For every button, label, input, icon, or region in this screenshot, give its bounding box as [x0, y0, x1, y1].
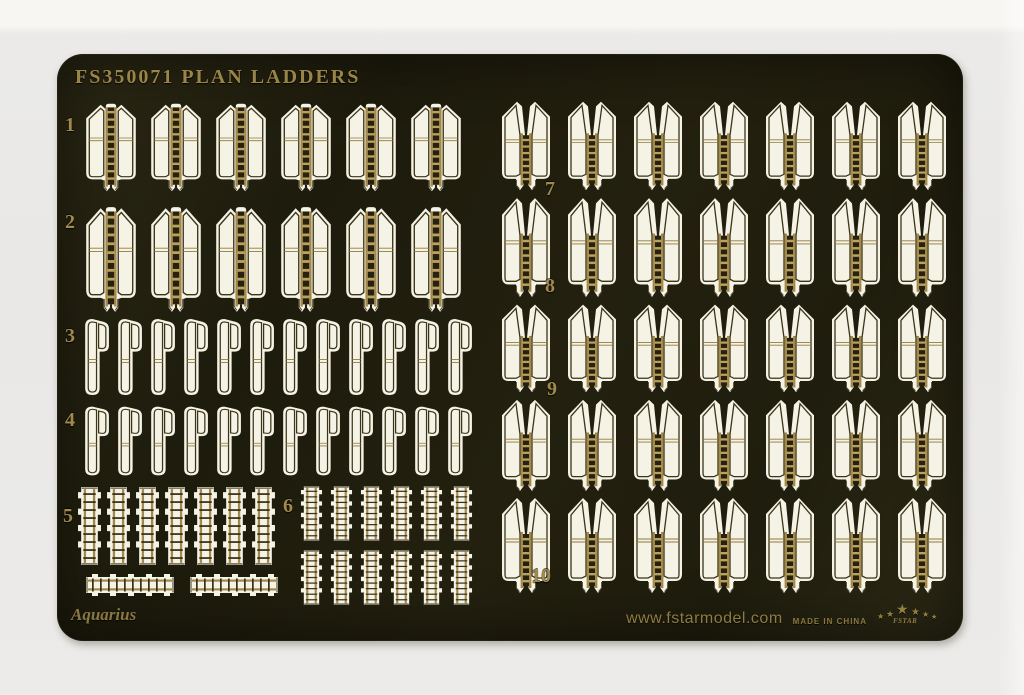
group-label-5: 5	[63, 506, 73, 526]
part-graphic	[561, 396, 623, 492]
pe-part-side-rail	[410, 403, 441, 479]
made-in-china-text: MADE IN CHINA	[793, 617, 867, 626]
part-graphic	[275, 102, 337, 192]
pe-part-ladder-folded-wide	[891, 396, 953, 492]
part-graphic	[693, 396, 755, 492]
part-graphic	[627, 301, 689, 393]
pe-part-ladder-strip-vertical	[330, 549, 353, 606]
pe-part-ladder-folded-wide	[561, 494, 623, 594]
part-graphic	[627, 98, 689, 191]
part-graphic	[251, 485, 276, 567]
part-group-10: 10	[495, 494, 953, 594]
part-graphic	[330, 549, 353, 606]
part-graphic	[561, 494, 623, 594]
pe-part-ladder-folded-wide	[693, 301, 755, 393]
pe-part-side-rail	[245, 403, 276, 479]
part-graphic	[627, 494, 689, 594]
part-strip	[495, 301, 953, 393]
pe-part-ladder-folded-wide	[693, 494, 755, 594]
part-graphic	[377, 315, 408, 399]
pe-part-ladder-strip-vertical	[77, 485, 102, 567]
pe-part-ladder-strip-vertical	[420, 549, 443, 606]
pe-part-ladder-folded-wide	[759, 396, 821, 492]
pe-part-ladder-folded-wide	[759, 194, 821, 298]
photo-etch-sheet: FS350071 PLAN LADDERS 1 2 3 4 5 6	[57, 54, 963, 641]
part-graphic	[759, 194, 821, 298]
part-graphic	[390, 549, 413, 606]
pe-part-ladder-folded-wide	[759, 494, 821, 594]
pe-part-ladder-folded-wide	[759, 301, 821, 393]
part-graphic	[300, 485, 323, 542]
pe-part-ladder-folded-wide	[693, 194, 755, 298]
part-graphic	[179, 403, 210, 479]
pe-part-ladder-folded-wide	[825, 98, 887, 191]
part-group-9b	[495, 396, 953, 492]
part-graphic	[311, 315, 342, 399]
pe-part-ladder-folded	[145, 205, 207, 313]
part-group-4: 4	[80, 403, 474, 479]
group-label-4: 4	[65, 410, 75, 430]
part-graphic	[344, 315, 375, 399]
pe-part-ladder-folded-wide	[627, 301, 689, 393]
part-graphic	[179, 315, 210, 399]
pe-part-ladder-folded	[275, 205, 337, 313]
part-graphic	[193, 485, 218, 567]
part-graphic	[825, 301, 887, 393]
part-graphic	[113, 315, 144, 399]
part-graphic	[561, 194, 623, 298]
group-label-1: 1	[65, 115, 75, 135]
pe-part-ladder-folded	[80, 102, 142, 192]
part-strip	[80, 315, 474, 399]
part-strip	[495, 396, 953, 492]
pe-part-side-rail	[443, 315, 474, 399]
pe-part-side-rail	[311, 403, 342, 479]
pe-part-ladder-strip-vertical	[420, 485, 443, 542]
part-graphic	[825, 98, 887, 191]
part-graphic	[340, 205, 402, 313]
pe-part-side-rail	[212, 315, 243, 399]
pe-part-ladder-folded-wide	[891, 494, 953, 594]
pe-part-side-rail	[212, 403, 243, 479]
pe-part-side-rail	[443, 403, 474, 479]
pe-part-ladder-folded-wide	[825, 396, 887, 492]
pe-part-side-rail	[113, 315, 144, 399]
pe-part-ladder-strip-vertical	[450, 485, 473, 542]
part-graphic	[212, 315, 243, 399]
website-url: www.fstarmodel.com	[626, 610, 783, 628]
part-graphic	[443, 315, 474, 399]
pe-part-ladder-folded	[405, 102, 467, 192]
part-graphic	[210, 205, 272, 313]
part-graphic	[759, 494, 821, 594]
pe-part-ladder-strip-vertical	[300, 549, 323, 606]
pe-part-side-rail	[146, 403, 177, 479]
pe-part-ladder-strip-vertical	[360, 549, 383, 606]
part-graphic	[210, 102, 272, 192]
brand-aquarius: Aquarius	[71, 605, 136, 625]
pe-part-ladder-folded-wide	[627, 98, 689, 191]
part-group-1: 1	[80, 102, 467, 192]
pe-part-ladder-strip-horizontal	[188, 573, 280, 597]
part-graphic	[759, 396, 821, 492]
part-graphic	[693, 494, 755, 594]
part-graphic	[561, 301, 623, 393]
part-strip	[495, 494, 953, 594]
part-strip	[80, 205, 467, 313]
part-graphic	[113, 403, 144, 479]
star-icon: ★	[931, 614, 937, 621]
pe-part-ladder-strip-vertical	[390, 485, 413, 542]
pe-part-ladder-strip-vertical	[106, 485, 131, 567]
pe-part-ladder-strip-vertical	[164, 485, 189, 567]
part-graphic	[300, 549, 323, 606]
pe-part-ladder-strip-vertical	[360, 485, 383, 542]
pe-part-ladder-folded-wide	[627, 494, 689, 594]
scanner-background: FS350071 PLAN LADDERS 1 2 3 4 5 6	[0, 0, 1024, 695]
part-group-5: 5	[77, 485, 276, 567]
part-graphic	[330, 485, 353, 542]
group-label-3: 3	[65, 326, 75, 346]
pe-part-ladder-folded-wide	[891, 194, 953, 298]
star-icon: ★	[896, 602, 909, 616]
pe-part-side-rail	[245, 315, 276, 399]
pe-part-side-rail	[80, 403, 111, 479]
pe-part-side-rail	[377, 315, 408, 399]
pe-part-side-rail	[410, 315, 441, 399]
pe-part-ladder-folded-wide	[693, 396, 755, 492]
part-graphic	[80, 403, 111, 479]
pe-part-ladder-strip-vertical	[222, 485, 247, 567]
pe-part-ladder-folded	[210, 205, 272, 313]
part-graphic	[443, 403, 474, 479]
pe-part-ladder-folded	[340, 102, 402, 192]
part-strip	[300, 485, 480, 606]
part-group-3: 3	[80, 315, 474, 399]
group-label-7: 7	[545, 179, 555, 199]
pe-part-ladder-folded-wide	[561, 98, 623, 191]
part-graphic	[106, 485, 131, 567]
part-graphic	[80, 315, 111, 399]
group-label-10: 10	[531, 566, 551, 586]
part-graphic	[561, 98, 623, 191]
part-graphic	[891, 396, 953, 492]
pe-part-side-rail	[377, 403, 408, 479]
footer-right: www.fstarmodel.com MADE IN CHINA ★ ★ ★ ★…	[626, 602, 939, 628]
pe-part-side-rail	[344, 315, 375, 399]
part-graphic	[135, 485, 160, 567]
part-strip	[495, 98, 953, 191]
part-graphic	[245, 315, 276, 399]
pe-part-side-rail	[311, 315, 342, 399]
pe-part-side-rail	[278, 403, 309, 479]
pe-part-side-rail	[113, 403, 144, 479]
fstar-logo-text: FSTAR	[893, 617, 917, 625]
fstar-logo: ★ ★ ★ ★ ★ ★ FSTAR	[877, 602, 939, 628]
part-graphic	[410, 403, 441, 479]
part-graphic	[405, 205, 467, 313]
star-icon: ★	[922, 611, 929, 619]
part-graphic	[759, 301, 821, 393]
part-graphic	[222, 485, 247, 567]
group-label-2: 2	[65, 212, 75, 232]
part-graphic	[891, 301, 953, 393]
pe-part-ladder-strip-vertical	[300, 485, 323, 542]
part-strip	[80, 403, 474, 479]
pe-part-side-rail	[146, 315, 177, 399]
pe-part-ladder-strip-horizontal	[84, 573, 176, 597]
pe-part-ladder-folded-wide	[891, 301, 953, 393]
part-graphic	[410, 315, 441, 399]
part-graphic	[891, 98, 953, 191]
group-label-6: 6	[283, 496, 293, 516]
part-strip	[495, 194, 953, 298]
part-graphic	[693, 98, 755, 191]
part-graphic	[145, 102, 207, 192]
pe-part-ladder-folded-wide	[561, 396, 623, 492]
part-graphic	[891, 194, 953, 298]
pe-part-ladder-folded-wide	[759, 98, 821, 191]
part-graphic	[627, 194, 689, 298]
part-graphic	[627, 396, 689, 492]
sheet-title: FS350071 PLAN LADDERS	[75, 66, 360, 89]
group-label-9: 9	[547, 379, 557, 399]
pe-part-ladder-folded	[210, 102, 272, 192]
part-graphic	[344, 403, 375, 479]
pe-part-ladder-folded-wide	[627, 194, 689, 298]
pe-part-ladder-folded	[340, 205, 402, 313]
part-graphic	[420, 549, 443, 606]
pe-part-ladder-strip-vertical	[251, 485, 276, 567]
pe-part-side-rail	[179, 315, 210, 399]
part-graphic	[825, 494, 887, 594]
part-graphic	[77, 485, 102, 567]
pe-part-side-rail	[278, 315, 309, 399]
part-graphic	[390, 485, 413, 542]
pe-part-ladder-folded-wide	[693, 98, 755, 191]
part-graphic	[278, 315, 309, 399]
part-group-2: 2	[80, 205, 467, 313]
part-graphic	[360, 485, 383, 542]
pe-part-ladder-folded	[145, 102, 207, 192]
pe-part-side-rail	[344, 403, 375, 479]
pe-part-ladder-strip-vertical	[135, 485, 160, 567]
part-graphic	[360, 549, 383, 606]
part-graphic	[405, 102, 467, 192]
pe-part-ladder-strip-vertical	[390, 549, 413, 606]
pe-part-ladder-folded-wide	[495, 396, 557, 492]
part-graphic	[245, 403, 276, 479]
part-graphic	[188, 573, 280, 597]
part-strip	[80, 102, 467, 192]
pe-part-ladder-folded	[80, 205, 142, 313]
pe-part-ladder-folded-wide	[825, 301, 887, 393]
part-graphic	[420, 485, 443, 542]
part-graphic	[278, 403, 309, 479]
part-graphic	[693, 301, 755, 393]
part-graphic	[80, 205, 142, 313]
pe-part-ladder-strip-vertical	[330, 485, 353, 542]
part-graphic	[80, 102, 142, 192]
group-label-8: 8	[545, 276, 555, 296]
part-graphic	[450, 485, 473, 542]
part-graphic	[146, 315, 177, 399]
part-graphic	[693, 194, 755, 298]
part-graphic	[825, 194, 887, 298]
part-graphic	[311, 403, 342, 479]
part-group-6: 6	[300, 485, 480, 606]
part-strip	[77, 485, 276, 567]
part-graphic	[759, 98, 821, 191]
part-graphic	[377, 403, 408, 479]
part-group-9: 9	[495, 301, 953, 393]
pe-part-ladder-folded-wide	[891, 98, 953, 191]
pe-part-ladder-folded-wide	[825, 494, 887, 594]
pe-part-ladder-folded-wide	[561, 301, 623, 393]
pe-part-ladder-folded-wide	[561, 194, 623, 298]
part-graphic	[146, 403, 177, 479]
pe-part-side-rail	[179, 403, 210, 479]
part-graphic	[891, 494, 953, 594]
part-strip	[84, 573, 280, 597]
part-graphic	[164, 485, 189, 567]
pe-part-ladder-strip-vertical	[450, 549, 473, 606]
star-icon: ★	[877, 613, 884, 621]
part-group-7: 7	[495, 98, 953, 191]
pe-part-ladder-folded-wide	[825, 194, 887, 298]
part-graphic	[495, 396, 557, 492]
part-group-8: 8	[495, 194, 953, 298]
pe-part-ladder-folded	[405, 205, 467, 313]
part-graphic	[145, 205, 207, 313]
part-graphic	[825, 396, 887, 492]
pe-part-side-rail	[80, 315, 111, 399]
part-graphic	[212, 403, 243, 479]
pe-part-ladder-strip-vertical	[193, 485, 218, 567]
pe-part-ladder-folded-wide	[627, 396, 689, 492]
part-graphic	[340, 102, 402, 192]
part-group-5-horizontal	[84, 573, 280, 597]
part-graphic	[450, 549, 473, 606]
part-graphic	[84, 573, 176, 597]
pe-part-ladder-folded	[275, 102, 337, 192]
part-graphic	[275, 205, 337, 313]
